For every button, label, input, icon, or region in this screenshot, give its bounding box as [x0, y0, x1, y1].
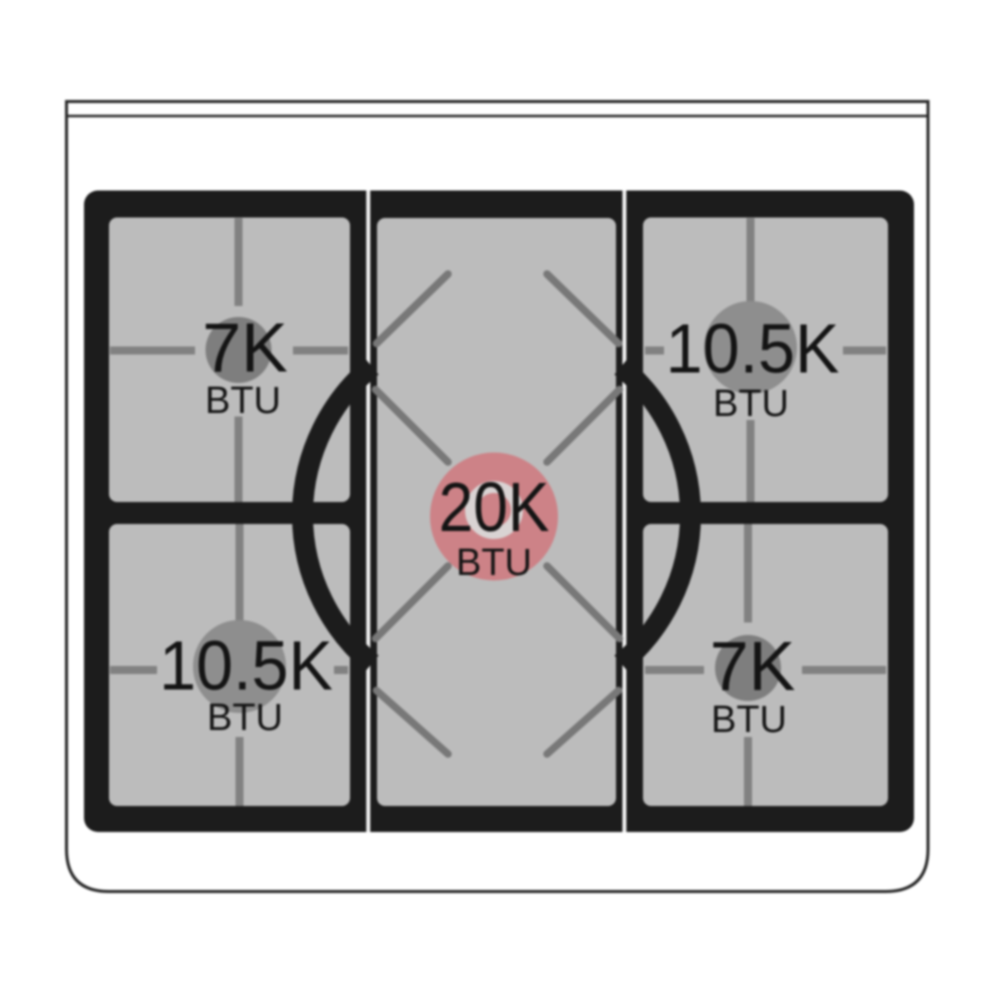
svg-text:7K: 7K — [710, 627, 796, 705]
svg-text:BTU: BTU — [711, 699, 787, 741]
svg-text:10.5K: 10.5K — [666, 310, 840, 388]
svg-text:BTU: BTU — [456, 542, 532, 584]
svg-text:BTU: BTU — [713, 383, 789, 425]
svg-text:BTU: BTU — [207, 697, 283, 739]
svg-text:10.5K: 10.5K — [159, 627, 333, 705]
svg-text:7K: 7K — [202, 309, 288, 387]
svg-text:20K: 20K — [439, 469, 550, 547]
svg-text:BTU: BTU — [205, 380, 281, 422]
